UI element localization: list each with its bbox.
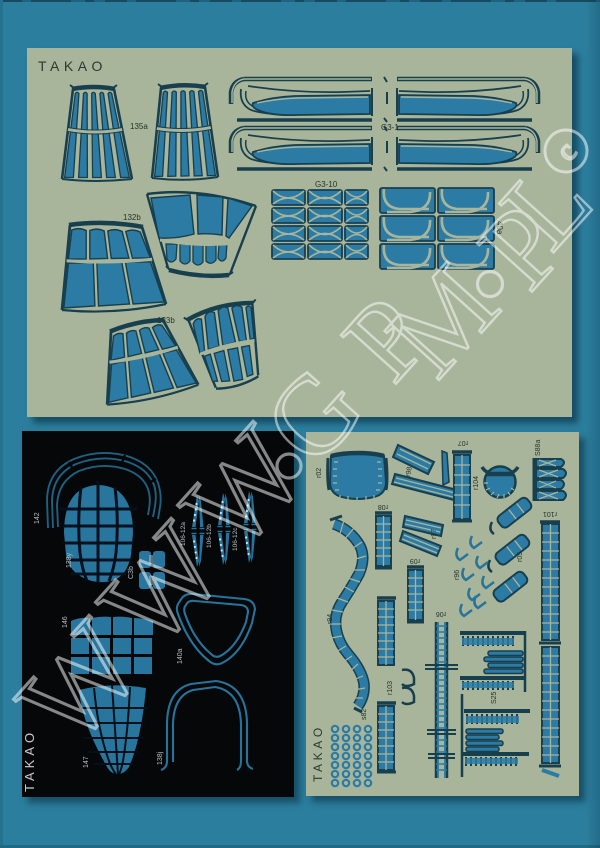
svg-text:r103: r103 — [387, 681, 394, 695]
svg-text:135a: 135a — [130, 122, 148, 131]
svg-text:r08: r08 — [378, 503, 388, 510]
svg-text:r06: r06 — [436, 610, 446, 617]
svg-text:r104: r104 — [473, 476, 480, 490]
svg-text:S88a: S88a — [535, 440, 542, 456]
svg-text:40a: 40a — [495, 221, 504, 235]
svg-text:r09: r09 — [410, 557, 420, 564]
svg-text:146: 146 — [62, 616, 69, 628]
svg-text:S25: S25 — [491, 691, 498, 704]
svg-text:G3-10: G3-10 — [315, 180, 338, 189]
svg-text:r07: r07 — [458, 439, 468, 446]
svg-text:r98: r98 — [405, 466, 414, 477]
svg-text:TAKAO: TAKAO — [22, 729, 37, 792]
svg-text:147: 147 — [83, 756, 90, 768]
svg-text:r02: r02 — [316, 468, 323, 478]
svg-text:C3b: C3b — [128, 566, 135, 579]
svg-text:TAKAO: TAKAO — [38, 58, 107, 74]
svg-text:s82: s82 — [361, 709, 368, 720]
svg-text:138y: 138y — [66, 552, 73, 568]
svg-text:TAKAO: TAKAO — [311, 724, 325, 782]
svg-text:r101: r101 — [543, 510, 557, 517]
svg-text:r94: r94 — [327, 614, 334, 624]
svg-text:106-12b: 106-12b — [206, 524, 213, 548]
svg-text:r96: r96 — [454, 570, 461, 580]
svg-text:132b: 132b — [123, 213, 141, 222]
svg-text:106-12c: 106-12c — [232, 527, 239, 551]
svg-text:r97: r97 — [431, 529, 438, 539]
svg-text:140a: 140a — [177, 648, 184, 664]
svg-text:138j: 138j — [157, 751, 164, 765]
svg-text:142: 142 — [34, 512, 41, 524]
svg-text:r05: r05 — [517, 552, 524, 562]
svg-text:106-12a: 106-12a — [180, 522, 187, 546]
svg-text:G3-1: G3-1 — [381, 123, 399, 132]
